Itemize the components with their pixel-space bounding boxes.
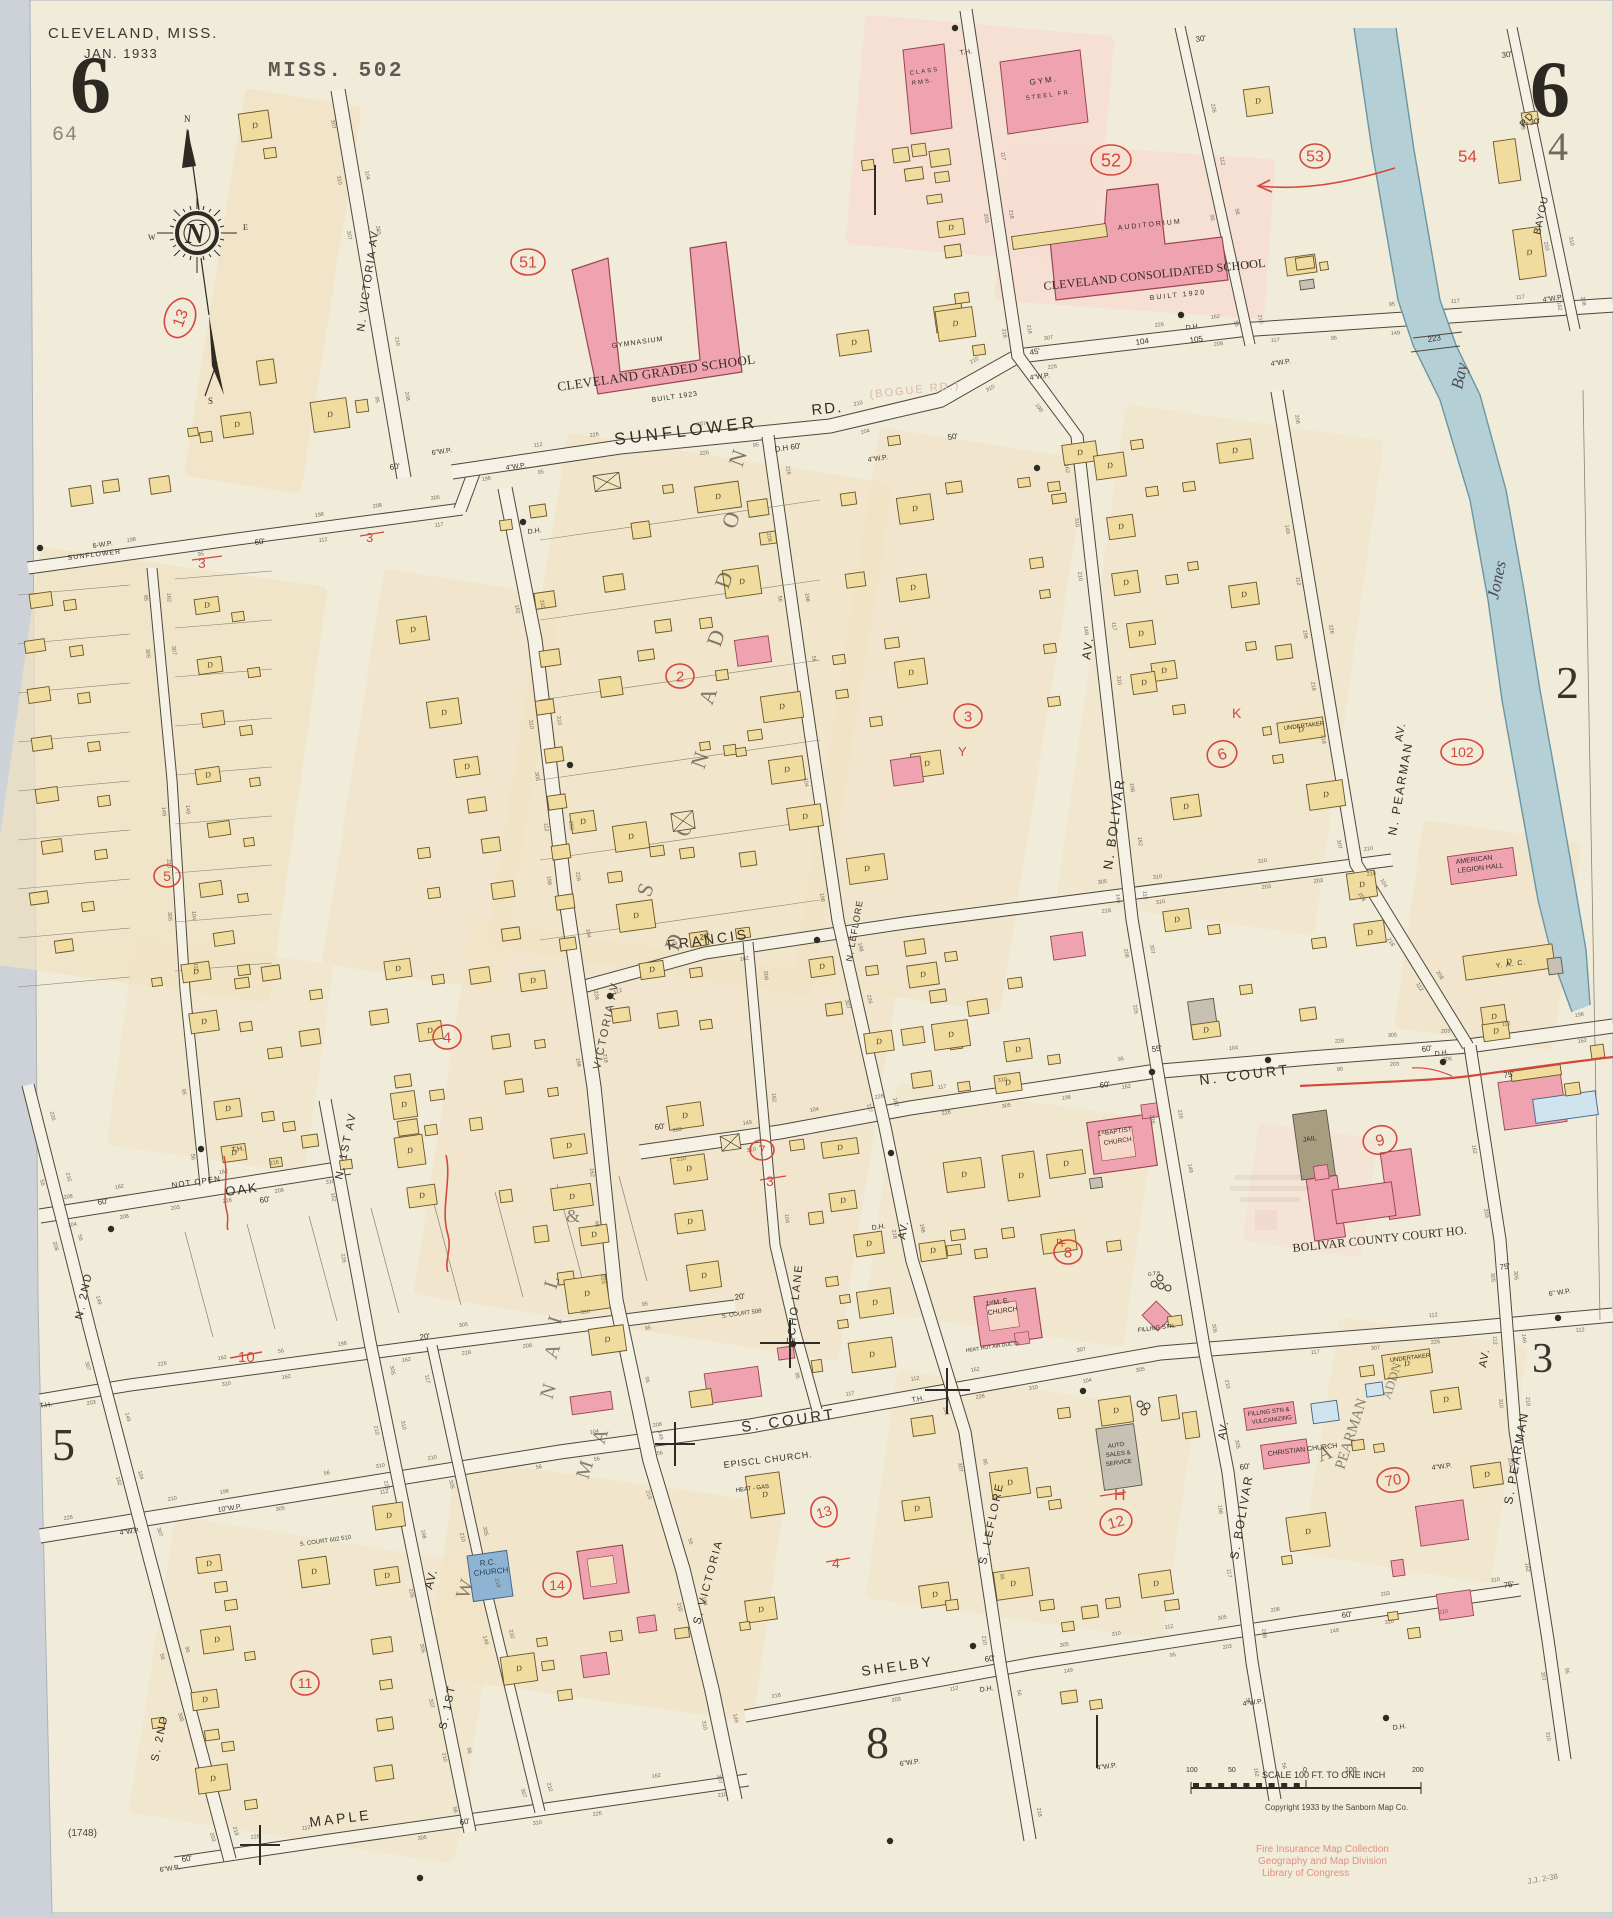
svg-text:70: 70	[1383, 1471, 1402, 1491]
svg-text:149: 149	[742, 1120, 752, 1127]
svg-text:30': 30'	[1195, 34, 1207, 44]
svg-text:149: 149	[1114, 894, 1121, 904]
svg-text:162: 162	[1577, 1038, 1587, 1045]
svg-text:112: 112	[1491, 1336, 1498, 1345]
svg-text:198: 198	[337, 1341, 347, 1348]
svg-text:307: 307	[1044, 335, 1054, 342]
svg-text:310: 310	[1497, 1399, 1504, 1409]
svg-text:305: 305	[1098, 879, 1108, 886]
svg-text:310: 310	[1490, 1577, 1500, 1584]
svg-text:56: 56	[1232, 320, 1239, 327]
svg-text:7: 7	[758, 1143, 765, 1158]
svg-text:30': 30'	[1501, 50, 1513, 60]
svg-text:149: 149	[1329, 1628, 1339, 1635]
svg-text:305: 305	[417, 1835, 427, 1842]
svg-text:226: 226	[250, 1834, 260, 1841]
svg-text:198: 198	[1216, 1505, 1223, 1515]
svg-text:307: 307	[170, 646, 177, 656]
svg-text:95: 95	[1337, 1067, 1344, 1073]
svg-text:56: 56	[535, 1464, 542, 1471]
svg-text:305: 305	[1388, 1032, 1398, 1039]
svg-text:203: 203	[1262, 884, 1272, 891]
svg-text:226: 226	[592, 1811, 602, 1818]
svg-text:218: 218	[1367, 871, 1377, 878]
svg-text:117: 117	[192, 963, 199, 972]
svg-text:56: 56	[1280, 1762, 1287, 1769]
svg-text:310: 310	[1073, 518, 1080, 528]
svg-text:30': 30'	[1529, 117, 1541, 127]
svg-text:305: 305	[459, 1322, 469, 1329]
svg-text:56: 56	[593, 1456, 600, 1463]
svg-text:210: 210	[1076, 572, 1083, 582]
svg-text:162: 162	[281, 1374, 291, 1381]
svg-text:3: 3	[1532, 1336, 1553, 1382]
svg-text:100: 100	[1345, 1767, 1357, 1774]
svg-text:3: 3	[766, 1173, 774, 1189]
svg-text:117: 117	[1271, 337, 1280, 344]
svg-text:4: 4	[832, 1555, 840, 1571]
svg-text:210: 210	[1438, 1609, 1448, 1616]
svg-text:95: 95	[981, 1458, 988, 1465]
svg-text:112: 112	[542, 823, 549, 832]
svg-text:56: 56	[1233, 208, 1240, 215]
svg-text:W: W	[148, 233, 156, 242]
svg-text:95: 95	[465, 1747, 472, 1754]
svg-text:56: 56	[277, 1348, 284, 1355]
svg-text:162: 162	[217, 1355, 227, 1362]
svg-text:162: 162	[401, 1357, 411, 1364]
svg-text:56: 56	[323, 1470, 330, 1477]
svg-text:95: 95	[593, 1221, 600, 1228]
svg-text:310: 310	[581, 1309, 591, 1316]
svg-text:305: 305	[430, 495, 440, 502]
svg-text:60': 60'	[1099, 1080, 1111, 1090]
svg-text:95: 95	[753, 442, 760, 449]
svg-text:102: 102	[1450, 744, 1474, 760]
svg-text:310: 310	[1384, 1619, 1394, 1626]
svg-text:223: 223	[1427, 333, 1442, 344]
svg-text:(1748): (1748)	[68, 1828, 97, 1839]
svg-text:95: 95	[645, 1325, 652, 1332]
svg-text:56: 56	[656, 1450, 663, 1457]
svg-text:310: 310	[165, 859, 172, 869]
svg-text:14: 14	[549, 1577, 565, 1593]
svg-text:H: H	[1114, 1487, 1126, 1504]
svg-text:E: E	[243, 223, 248, 232]
svg-text:218: 218	[462, 1350, 472, 1357]
svg-text:203: 203	[1441, 1028, 1451, 1035]
svg-text:305: 305	[533, 772, 540, 782]
svg-text:112: 112	[1501, 1021, 1511, 1028]
svg-text:64: 64	[52, 124, 78, 147]
svg-text:95: 95	[1117, 1056, 1124, 1063]
svg-text:162: 162	[1136, 837, 1143, 847]
svg-text:95: 95	[642, 1301, 649, 1308]
svg-text:10: 10	[238, 1349, 255, 1366]
svg-text:50: 50	[1228, 1767, 1236, 1774]
svg-text:3: 3	[366, 530, 373, 545]
svg-text:162: 162	[651, 1773, 661, 1780]
svg-text:Copyright 1933 by the Sanborn: Copyright 1933 by the Sanborn Map Co.	[1265, 1803, 1408, 1812]
svg-text:95: 95	[373, 396, 380, 403]
svg-text:104: 104	[190, 911, 197, 921]
svg-text:5: 5	[52, 1419, 75, 1470]
svg-text:208: 208	[1260, 1629, 1267, 1639]
svg-text:51: 51	[519, 255, 537, 272]
svg-text:75': 75'	[1503, 1070, 1515, 1080]
svg-text:60': 60'	[254, 537, 266, 547]
svg-text:162: 162	[770, 1093, 777, 1103]
svg-text:104: 104	[802, 777, 809, 787]
svg-text:112: 112	[1576, 1327, 1585, 1334]
svg-text:310: 310	[527, 720, 534, 730]
svg-text:2: 2	[676, 668, 684, 685]
svg-text:310: 310	[1115, 676, 1122, 686]
svg-text:226: 226	[784, 465, 791, 475]
svg-text:60': 60'	[181, 1854, 193, 1864]
svg-text:104: 104	[783, 1214, 790, 1224]
svg-text:20': 20'	[699, 932, 711, 942]
svg-text:310: 310	[1156, 899, 1166, 906]
svg-text:SCALE 100 FT. TO ONE INCH: SCALE 100 FT. TO ONE INCH	[1262, 1770, 1385, 1780]
svg-text:226: 226	[1048, 364, 1058, 371]
svg-text:N: N	[184, 219, 207, 250]
svg-text:Library of Congress: Library of Congress	[1262, 1868, 1349, 1879]
svg-text:95: 95	[537, 469, 544, 476]
svg-text:N: N	[184, 114, 191, 124]
svg-text:307: 307	[1539, 1671, 1546, 1681]
svg-text:K: K	[1232, 705, 1242, 721]
svg-text:162: 162	[588, 1168, 595, 1178]
svg-text:60': 60'	[1239, 1462, 1251, 1472]
svg-text:117: 117	[1451, 298, 1460, 305]
svg-text:54: 54	[1458, 147, 1477, 166]
svg-text:45': 45'	[1029, 347, 1041, 357]
svg-text:208: 208	[652, 1422, 662, 1429]
svg-text:208: 208	[762, 971, 769, 981]
svg-text:6: 6	[70, 39, 111, 130]
svg-text:305: 305	[1489, 1273, 1496, 1283]
svg-text:S: S	[208, 396, 213, 406]
svg-text:52: 52	[1101, 150, 1121, 170]
svg-text:226: 226	[1431, 1339, 1441, 1346]
svg-text:60': 60'	[97, 1197, 109, 1207]
svg-text:208: 208	[765, 532, 772, 542]
svg-text:60': 60'	[654, 1122, 666, 1132]
svg-text:8: 8	[866, 1717, 889, 1768]
svg-text:310: 310	[532, 1820, 542, 1827]
svg-text:198: 198	[126, 537, 136, 544]
svg-text:3: 3	[198, 555, 206, 571]
svg-text:310: 310	[1153, 874, 1163, 881]
svg-text:95: 95	[1389, 302, 1396, 308]
svg-text:50': 50'	[947, 432, 959, 442]
svg-text:60': 60'	[1341, 1610, 1353, 1620]
svg-text:11: 11	[298, 1675, 313, 1691]
svg-text:203: 203	[1390, 1061, 1400, 1068]
svg-text:117: 117	[1225, 1569, 1232, 1578]
svg-text:104: 104	[1229, 1045, 1239, 1052]
svg-text:0: 0	[1303, 1767, 1307, 1774]
svg-text:203: 203	[567, 821, 574, 831]
svg-text:56: 56	[1015, 1689, 1022, 1696]
svg-text:60': 60'	[459, 1817, 471, 1827]
svg-text:56: 56	[810, 655, 817, 662]
svg-text:210: 210	[1364, 846, 1374, 853]
svg-text:60': 60'	[984, 1654, 996, 1664]
svg-text:104: 104	[1135, 336, 1150, 347]
svg-text:149: 149	[184, 805, 191, 815]
svg-text:Y: Y	[958, 744, 967, 759]
svg-text:149: 149	[1520, 1334, 1527, 1344]
svg-text:95: 95	[1563, 1667, 1570, 1674]
svg-text:4: 4	[1548, 124, 1568, 169]
svg-text:226: 226	[599, 1275, 606, 1285]
svg-text:198: 198	[314, 512, 324, 519]
svg-text:310: 310	[555, 716, 562, 726]
svg-text:20': 20'	[419, 1332, 431, 1342]
svg-text:198: 198	[803, 592, 810, 602]
svg-text:+: +	[1058, 1235, 1066, 1251]
svg-text:208: 208	[372, 503, 382, 510]
svg-text:112: 112	[1429, 1312, 1438, 1319]
svg-text:3: 3	[964, 708, 972, 725]
svg-text:226: 226	[157, 1361, 167, 1368]
svg-text:4: 4	[443, 1029, 451, 1046]
svg-text:112: 112	[533, 442, 543, 449]
svg-text:208: 208	[1214, 341, 1224, 348]
svg-text:162: 162	[1211, 314, 1221, 321]
svg-text:95: 95	[1331, 336, 1338, 342]
svg-text:218: 218	[1524, 1397, 1531, 1407]
svg-text:95: 95	[1169, 1652, 1176, 1659]
svg-text:305: 305	[166, 912, 173, 922]
svg-text:226: 226	[574, 872, 581, 882]
svg-text:198: 198	[545, 876, 552, 886]
svg-text:203: 203	[1380, 1591, 1390, 1598]
svg-text:56: 56	[1244, 261, 1251, 268]
svg-text:56: 56	[451, 1806, 458, 1813]
svg-text:60': 60'	[259, 1195, 271, 1205]
svg-text:100: 100	[1186, 1767, 1198, 1774]
svg-text:149: 149	[160, 807, 167, 817]
svg-text:200: 200	[1412, 1767, 1424, 1774]
svg-text:Fire Insurance Map Collection: Fire Insurance Map Collection	[1256, 1844, 1389, 1855]
svg-text:198: 198	[481, 476, 491, 483]
svg-text:2: 2	[1556, 657, 1579, 708]
svg-text:310: 310	[221, 1381, 231, 1388]
svg-text:&: &	[566, 1206, 580, 1226]
svg-text:60': 60'	[1421, 1044, 1433, 1054]
svg-text:Geography and Map Division: Geography and Map Division	[1258, 1856, 1387, 1867]
svg-text:226: 226	[1155, 322, 1165, 329]
svg-text:149: 149	[1391, 330, 1401, 337]
svg-text:20': 20'	[734, 1292, 746, 1302]
svg-text:307: 307	[697, 421, 707, 428]
svg-text:117: 117	[1110, 622, 1117, 631]
svg-text:198: 198	[818, 892, 825, 902]
svg-text:56: 56	[189, 1154, 196, 1161]
svg-text:208: 208	[523, 1343, 533, 1350]
svg-text:198: 198	[1574, 1012, 1584, 1019]
svg-text:95: 95	[643, 1376, 650, 1383]
svg-text:218: 218	[1102, 908, 1112, 915]
svg-text:53: 53	[1306, 149, 1324, 166]
svg-text:60': 60'	[389, 462, 401, 472]
svg-text:104: 104	[589, 1429, 599, 1436]
svg-text:210: 210	[676, 1156, 686, 1163]
svg-text:117: 117	[1311, 1349, 1320, 1356]
svg-text:226: 226	[589, 432, 599, 439]
svg-text:226: 226	[700, 450, 710, 457]
svg-text:305: 305	[144, 649, 151, 659]
svg-text:162: 162	[1063, 464, 1070, 474]
svg-text:226: 226	[1335, 1038, 1345, 1045]
svg-text:112: 112	[1141, 891, 1148, 900]
svg-text:75': 75'	[1499, 1262, 1511, 1272]
svg-text:105: 105	[1189, 334, 1204, 345]
svg-text:307: 307	[1371, 1345, 1381, 1352]
svg-text:203: 203	[672, 1127, 682, 1134]
svg-text:5: 5	[163, 868, 171, 884]
svg-text:305: 305	[1512, 1271, 1519, 1281]
svg-text:56: 56	[776, 595, 783, 602]
svg-text:95: 95	[180, 1089, 187, 1096]
svg-text:112: 112	[318, 537, 328, 544]
svg-text:203: 203	[1314, 878, 1324, 885]
svg-text:55': 55'	[1151, 1044, 1163, 1054]
svg-text:310: 310	[746, 1147, 756, 1154]
svg-text:MISS. 502: MISS. 502	[268, 60, 404, 83]
svg-text:198: 198	[1128, 783, 1135, 793]
svg-text:95: 95	[998, 1573, 1005, 1580]
svg-text:149: 149	[1082, 626, 1089, 636]
svg-text:117: 117	[434, 522, 444, 529]
svg-text:112: 112	[301, 1825, 311, 1832]
svg-text:117: 117	[1516, 294, 1525, 301]
svg-text:162: 162	[165, 593, 172, 603]
svg-text:75': 75'	[1503, 1580, 1515, 1590]
svg-text:95: 95	[142, 595, 149, 602]
svg-text:210: 210	[717, 1792, 727, 1799]
svg-text:95: 95	[1208, 214, 1215, 221]
svg-text:RD.: RD.	[811, 399, 844, 419]
svg-text:310: 310	[1258, 858, 1268, 865]
svg-text:310: 310	[1544, 1731, 1551, 1741]
